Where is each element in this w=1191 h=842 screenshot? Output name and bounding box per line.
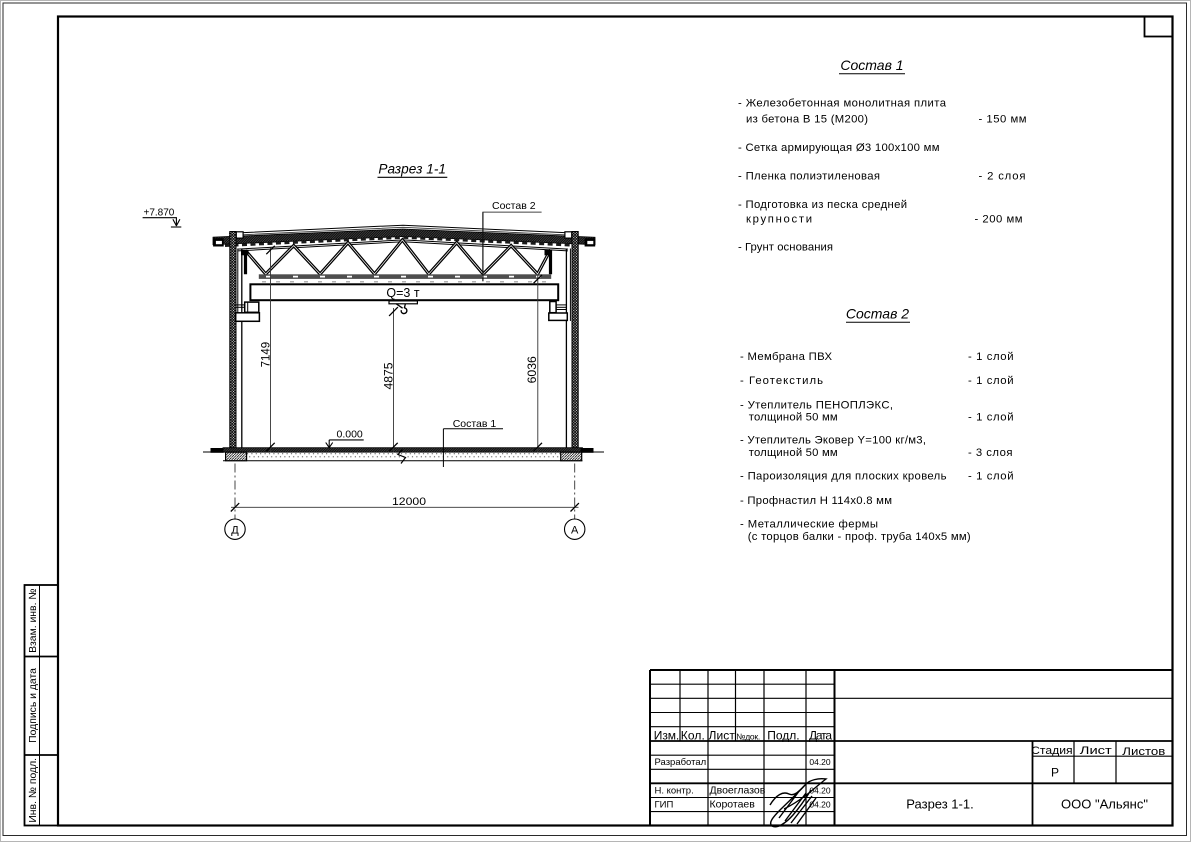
svg-text:- 2 слоя: - 2 слоя: [979, 170, 1026, 182]
svg-text:- 3 слоя: - 3 слоя: [968, 447, 1013, 459]
svg-text:- Пленка полиэтиленовая: - Пленка полиэтиленовая: [738, 170, 880, 182]
svg-text:- Сетка армирующая Ø3 100х100: - Сетка армирующая Ø3 100х100 мм: [738, 142, 940, 154]
svg-text:- Утеплитель Эковер Y=100 кг/м: - Утеплитель Эковер Y=100 кг/м3,: [740, 435, 926, 447]
svg-text:- Пароизоляция для плоских кро: - Пароизоляция для плоских кровель: [740, 470, 947, 482]
svg-text:Инв. № подл.: Инв. № подл.: [28, 758, 39, 823]
svg-text:Стадия: Стадия: [1031, 745, 1073, 757]
svg-text:- Железобетонная монолитная п: - Железобетонная монолитная плита: [738, 98, 947, 110]
svg-text:крупности: крупности: [746, 213, 812, 225]
svg-text:ГИП: ГИП: [655, 800, 674, 811]
svg-text:Изм.: Изм.: [654, 728, 679, 742]
svg-text:толщиной 50 мм: толщиной 50 мм: [749, 412, 838, 424]
svg-text:Дата: Дата: [809, 728, 832, 742]
svg-text:Р: Р: [1051, 765, 1059, 779]
svg-text:7149: 7149: [259, 342, 273, 368]
svg-text:12000: 12000: [392, 496, 426, 508]
svg-text:+7.870: +7.870: [144, 207, 175, 218]
svg-text:Q=3 т: Q=3 т: [386, 286, 419, 300]
svg-text:- Грунт основания: - Грунт основания: [738, 242, 833, 254]
svg-text:- 1 слой: - 1 слой: [968, 375, 1014, 387]
svg-text:Подпись и дата: Подпись и дата: [28, 668, 39, 743]
svg-text:4875: 4875: [382, 362, 396, 389]
svg-text:04.20: 04.20: [809, 757, 831, 767]
svg-text:Состав 2: Состав 2: [492, 200, 536, 212]
svg-text:Взам. инв. №: Взам. инв. №: [28, 589, 39, 653]
svg-text:А: А: [571, 524, 579, 536]
svg-text:Состав 2: Состав 2: [846, 306, 909, 322]
svg-text:Двоеглазов: Двоеглазов: [710, 785, 766, 797]
svg-text:ООО "Альянс": ООО "Альянс": [1061, 797, 1148, 812]
svg-text:Разрез 1-1.: Разрез 1-1.: [906, 797, 973, 812]
svg-text:- 150 мм: - 150 мм: [979, 114, 1027, 126]
svg-text:Д: Д: [231, 524, 239, 536]
svg-text:Лист: Лист: [709, 728, 736, 742]
svg-text:Лист: Лист: [1080, 745, 1112, 757]
svg-text:из бетона В 15 (М200): из бетона В 15 (М200): [746, 114, 868, 126]
svg-text:- 200 мм: - 200 мм: [975, 213, 1023, 225]
svg-text:- Профнастил Н 114х0.8 мм: - Профнастил Н 114х0.8 мм: [740, 495, 892, 507]
svg-text:- Утеплитель ПЕНОПЛЭКС,: - Утеплитель ПЕНОПЛЭКС,: [740, 400, 893, 412]
svg-text:0.000: 0.000: [337, 429, 363, 441]
svg-text:Н. контр.: Н. контр.: [655, 786, 694, 797]
svg-text:Разработал: Разработал: [655, 757, 707, 768]
svg-text:- Подготовка из песка средней: - Подготовка из песка средней: [738, 199, 907, 211]
svg-text:- Металлические фермы: - Металлические фермы: [740, 519, 878, 531]
svg-text:6036: 6036: [525, 356, 539, 384]
svg-text:толщиной 50 мм: толщиной 50 мм: [749, 447, 838, 459]
svg-text:Коротаев: Коротаев: [710, 799, 756, 811]
svg-text:- 1 слой: - 1 слой: [968, 412, 1014, 424]
svg-text:04.20: 04.20: [809, 800, 831, 810]
svg-text:(с торцов балки - проф. труба: (с торцов балки - проф. труба 140х5 мм): [748, 531, 971, 543]
svg-text:Разрез 1-1: Разрез 1-1: [378, 162, 446, 177]
svg-text:- Геотекстиль: - Геотекстиль: [740, 375, 823, 387]
svg-text:Состав 1: Состав 1: [453, 418, 497, 430]
svg-text:Состав 1: Состав 1: [840, 57, 903, 73]
svg-text:№док.: №док.: [736, 732, 760, 742]
svg-text:Кол.: Кол.: [681, 728, 705, 742]
svg-text:- 1 слой: - 1 слой: [968, 470, 1014, 482]
svg-text:Листов: Листов: [1122, 746, 1165, 758]
svg-text:- 1 слой: - 1 слой: [968, 351, 1014, 363]
svg-text:Подл.: Подл.: [767, 728, 799, 742]
svg-text:- Мембрана ПВХ: - Мембрана ПВХ: [740, 351, 832, 363]
